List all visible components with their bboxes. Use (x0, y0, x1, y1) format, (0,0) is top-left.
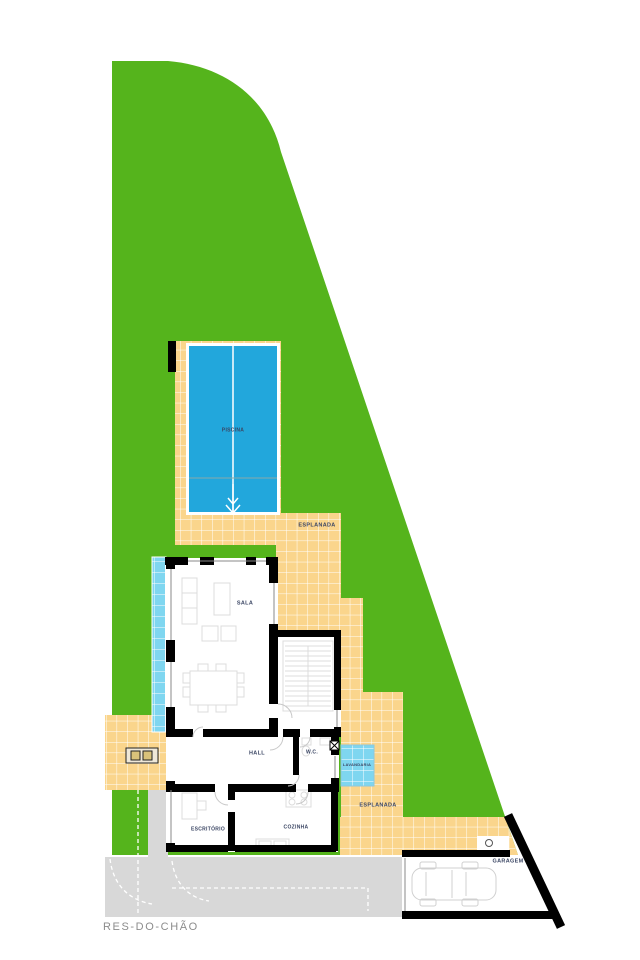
label-sala: SALA (237, 600, 253, 606)
walkway (148, 788, 168, 858)
driveway (105, 857, 402, 917)
label-escritorio: ESCRITÓRIO (191, 826, 225, 832)
label-cozinha: COZINHA (284, 824, 309, 830)
label-piscina: PISCINA (222, 427, 244, 433)
garage-notch (477, 836, 509, 852)
label-wc: W.C. (306, 749, 318, 755)
floor-plan-canvas (0, 0, 640, 960)
label-esplanada-upper: ESPLANADA (298, 522, 335, 528)
plan-title: RES-DO-CHÃO (103, 921, 199, 933)
label-esplanada-lower: ESPLANADA (359, 802, 396, 808)
label-hall: HALL (249, 750, 265, 756)
planter-strip (152, 557, 166, 732)
stairs-icon (283, 641, 333, 711)
floor-plan-page: PISCINAESPLANADASALAHALLW.C.LAVANDARIAES… (0, 0, 640, 960)
label-lavandaria: LAVANDARIA (343, 763, 371, 767)
label-garagem: GARAGEM (492, 858, 523, 864)
drain-icon (330, 741, 339, 750)
bbq-icon (126, 748, 158, 763)
